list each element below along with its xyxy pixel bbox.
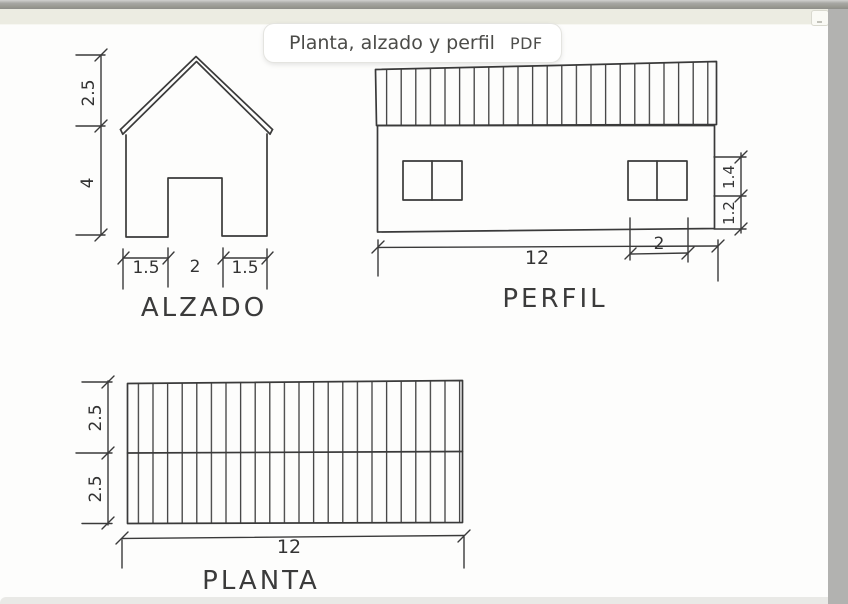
perfil-length-label: 12 [525, 247, 549, 269]
perfil-window-width-label: 2 [654, 234, 665, 254]
bottom-edge-strip [0, 597, 828, 604]
document-title: Planta, alzado y perfil [289, 32, 495, 54]
perfil-right-window [628, 161, 687, 200]
perfil-wall-outline [378, 126, 715, 233]
scan-top-edge [0, 0, 848, 9]
alzado-title: ALZADO [141, 293, 267, 323]
perfil-window-height-label: 1.4 [720, 165, 738, 189]
alzado-vertical-dimension [76, 49, 107, 241]
planta-left-dimension [76, 376, 114, 529]
alzado-wall-height-label: 4 [78, 178, 98, 189]
planta-roof-outline [128, 381, 463, 524]
alzado-view: 2.5 4 1.5 2 1.5 ALZADO [76, 49, 273, 323]
paper-top-edge [0, 9, 828, 25]
alzado-house-outline [121, 57, 273, 238]
perfil-sill-height-label: 1.2 [720, 201, 738, 225]
alzado-roof-height-label: 2.5 [79, 79, 99, 106]
planta-title: PLANTA [202, 566, 320, 596]
perfil-title: PERFIL [502, 284, 607, 314]
planta-depth-front-label: 2.5 [86, 475, 106, 502]
viewer-screen: 2.5 4 1.5 2 1.5 ALZADO [0, 0, 848, 604]
alzado-door-left-label: 1.5 [132, 258, 159, 278]
alzado-door-right-label: 1.5 [231, 258, 258, 278]
pdf-badge: PDF [510, 34, 543, 53]
perfil-left-window [403, 161, 462, 200]
drawing-canvas: 2.5 4 1.5 2 1.5 ALZADO [0, 0, 848, 604]
planta-length-label: 12 [277, 536, 301, 558]
alzado-door-width-label: 2 [190, 257, 201, 277]
document-title-pill[interactable]: Planta, alzado y perfil PDF [264, 24, 561, 62]
planta-view: 2.5 2.5 12 PLANTA [76, 376, 470, 596]
right-margin-strip [828, 9, 848, 604]
planta-depth-back-label: 2.5 [86, 404, 106, 431]
perfil-roof-band [376, 62, 717, 126]
paper-edge-notch [811, 10, 829, 26]
perfil-view: 1.4 1.2 12 2 PERFIL [372, 62, 747, 315]
